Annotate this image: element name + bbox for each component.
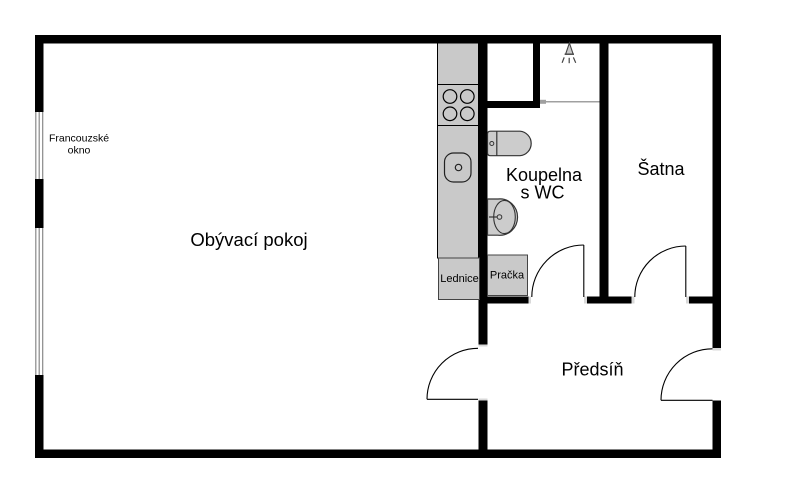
svg-text:Francouzské: Francouzské	[49, 133, 109, 145]
svg-text:s WC: s WC	[521, 183, 565, 203]
svg-text:Předsíň: Předsíň	[561, 360, 623, 380]
svg-text:okno: okno	[68, 145, 91, 157]
svg-text:Obývací pokoj: Obývací pokoj	[190, 229, 307, 250]
svg-text:Pračka: Pračka	[490, 270, 525, 282]
svg-text:Lednice: Lednice	[440, 273, 479, 285]
svg-text:Šatna: Šatna	[637, 158, 685, 179]
